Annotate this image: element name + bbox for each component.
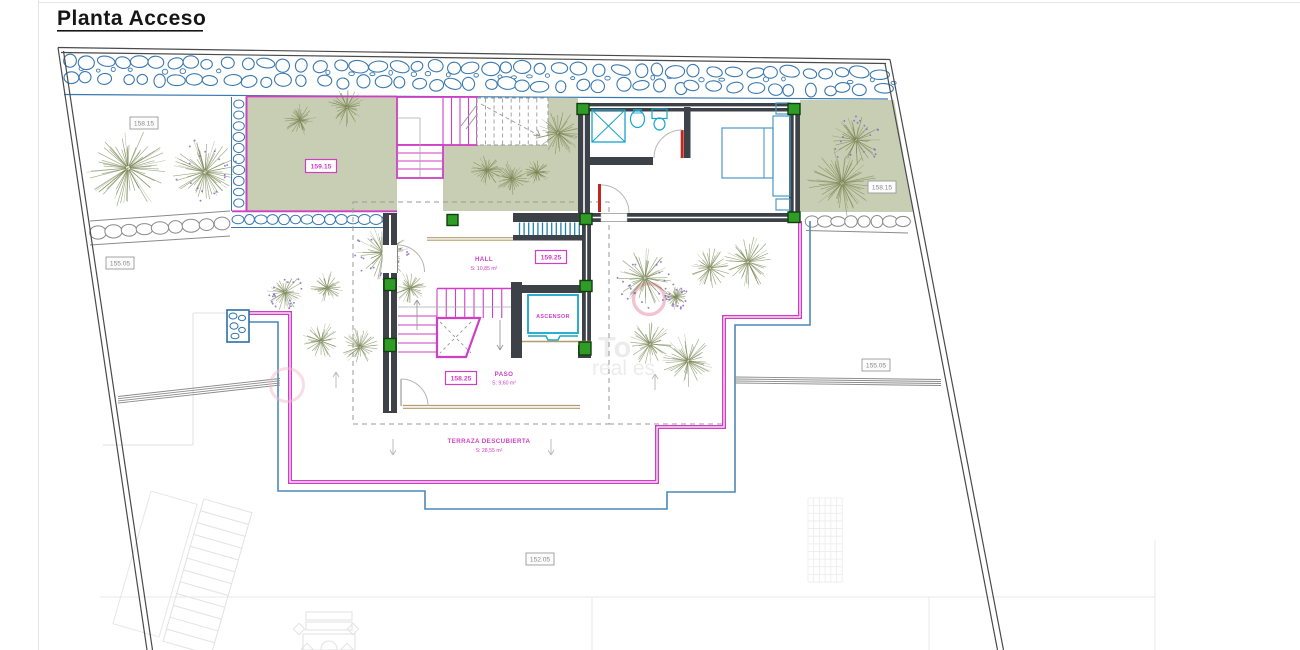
elevation-label: 152.05 — [526, 553, 554, 565]
room-label-ascensor: ASCENSOR — [536, 314, 570, 320]
tree-blossom-dot — [272, 303, 274, 305]
tree-blossom-dot — [406, 251, 408, 253]
tree-branch — [196, 143, 205, 172]
stone — [182, 219, 200, 232]
column-marker — [384, 339, 396, 352]
stone — [748, 82, 765, 94]
stone — [783, 84, 794, 96]
stone — [97, 55, 116, 68]
tree-blossom-dot — [685, 300, 687, 302]
stone — [255, 215, 268, 224]
tree-blossom-dot — [873, 156, 875, 158]
tree-blossom-dot — [863, 125, 865, 127]
tree-blossom-dot — [627, 298, 629, 300]
tree-blossom-dot — [877, 129, 879, 131]
tree-blossom-dot — [662, 299, 664, 301]
tree-branch — [286, 279, 298, 292]
elevator-sill — [528, 336, 578, 340]
tree-blossom-dot — [189, 163, 191, 165]
tree-blossom-dot — [658, 293, 660, 295]
stone — [234, 100, 244, 108]
gray-rocks-edge — [806, 231, 908, 234]
tree-blossom-dot — [361, 256, 363, 258]
tree-blossom-dot — [371, 239, 373, 241]
faint-stair-rung — [167, 629, 215, 643]
tree-blossom-dot — [681, 291, 683, 293]
pebble — [527, 75, 533, 78]
tree-blossom-dot — [853, 120, 855, 122]
tree-blossom-dot — [850, 154, 852, 156]
tree-blossom-dot — [224, 165, 226, 167]
tree-branch — [689, 343, 705, 360]
tree-branch — [116, 147, 127, 166]
faint-furniture — [347, 623, 358, 634]
pebble — [782, 77, 786, 81]
door-opening — [383, 245, 398, 273]
tree-branch — [206, 146, 223, 170]
garden-left — [246, 96, 397, 211]
stone — [590, 79, 606, 94]
stone — [121, 224, 136, 236]
bed-headboard — [773, 116, 790, 196]
stone — [530, 81, 549, 93]
tree-blossom-dot — [289, 300, 291, 302]
tree-blossom-dot — [843, 120, 845, 122]
stone — [275, 58, 291, 74]
tree-blossom-dot — [857, 122, 859, 124]
tree-blossom-dot — [213, 192, 215, 194]
tree-blossom-dot — [664, 295, 666, 297]
stone — [370, 215, 383, 225]
tree-blossom-dot — [218, 158, 220, 160]
faint-stair-rung — [170, 617, 218, 631]
tree-blossom-dot — [680, 288, 682, 290]
tree-blossom-dot — [275, 305, 277, 307]
stone — [239, 327, 246, 332]
stone — [447, 62, 461, 75]
stone — [533, 62, 547, 75]
room-label-paso: PASO S: 9,60 m² — [492, 371, 516, 387]
wall — [522, 285, 582, 293]
tree-blossom-dot — [840, 140, 842, 142]
stone — [482, 62, 500, 75]
tree-branch — [649, 323, 650, 343]
stone — [665, 65, 686, 79]
stone — [274, 72, 292, 87]
stone — [229, 313, 237, 319]
stone — [410, 60, 424, 73]
tree-blossom-dot — [399, 248, 401, 250]
toilet-bowl — [654, 118, 665, 130]
retaining-band-line — [118, 383, 280, 401]
stone — [245, 215, 255, 225]
tree-blossom-dot — [224, 176, 226, 178]
site-boundary-line — [58, 48, 147, 650]
pebble — [370, 73, 375, 76]
stone — [317, 74, 332, 86]
tree-blossom-dot — [297, 278, 299, 280]
column-marker — [579, 342, 591, 355]
stone — [575, 78, 591, 93]
tree — [354, 227, 409, 281]
faint-stair-rung — [187, 558, 235, 572]
faint-stair-rung — [194, 534, 242, 548]
stone — [706, 65, 723, 78]
pebble — [389, 70, 393, 75]
stone — [368, 60, 388, 73]
stone — [375, 75, 392, 88]
tree-blossom-dot — [268, 294, 270, 296]
tree-blossom-dot — [837, 156, 839, 158]
tree — [725, 237, 771, 288]
tree-blossom-dot — [284, 279, 286, 281]
faint-furniture — [293, 623, 304, 634]
title-underline — [57, 30, 203, 32]
stone — [199, 219, 214, 231]
tree-blossom-dot — [672, 305, 674, 307]
tree — [173, 140, 237, 202]
stone — [427, 58, 444, 73]
stone — [616, 76, 633, 93]
stone — [412, 78, 427, 90]
tree-branch — [650, 329, 667, 344]
tree-branch — [130, 147, 161, 166]
stone — [460, 60, 480, 75]
tree-blossom-dot — [380, 274, 382, 276]
elevation-label: 158.25 — [446, 372, 477, 385]
elevation-value: 158.15 — [134, 121, 155, 128]
faint-furniture — [341, 643, 352, 650]
stone — [686, 64, 699, 77]
tree-blossom-dot — [842, 136, 844, 138]
stone — [591, 63, 606, 78]
tree-blossom-dot — [667, 296, 669, 298]
retaining-band-line — [118, 381, 280, 399]
room-label-terraza: TERRAZA DESCUBIERTA S: 28,55 m² — [448, 438, 531, 454]
stone — [167, 74, 186, 86]
column-marker — [384, 279, 396, 291]
stone — [632, 79, 650, 91]
tree-blossom-dot — [672, 283, 674, 285]
stone — [896, 216, 911, 226]
stone — [336, 77, 349, 90]
stone — [555, 80, 566, 93]
elevation-value: 152.05 — [530, 557, 551, 564]
stone — [802, 68, 817, 80]
faint-stair-rung — [173, 605, 221, 619]
elevation-label: 159.15 — [306, 160, 337, 173]
elevation-value: 158.25 — [451, 376, 472, 383]
stone — [334, 59, 349, 72]
tree — [267, 278, 302, 309]
stone — [301, 215, 313, 224]
stone — [805, 83, 816, 97]
stone — [845, 216, 857, 228]
stone — [805, 216, 818, 227]
stone — [233, 176, 244, 185]
stone — [64, 72, 79, 84]
tree-blossom-dot — [863, 151, 865, 153]
tree-blossom-dot — [855, 116, 857, 118]
stone — [260, 76, 273, 88]
stone — [105, 225, 122, 238]
room-label-hall: HALL S: 10,85 m² — [471, 256, 498, 272]
stone — [183, 56, 199, 69]
tree-blossom-dot — [666, 298, 668, 300]
elevation-value: 155.05 — [110, 261, 131, 268]
pebble — [474, 73, 479, 77]
stone — [725, 66, 743, 77]
stair-landing — [437, 318, 480, 357]
column-marker — [580, 281, 592, 292]
column-marker — [580, 214, 592, 225]
tree-blossom-dot — [190, 182, 192, 184]
column-marker — [788, 104, 800, 115]
tree-blossom-dot — [272, 295, 274, 297]
stone — [653, 78, 666, 92]
tree-blossom-dot — [233, 182, 235, 184]
stone — [233, 154, 244, 163]
stone — [499, 61, 513, 75]
stone — [233, 132, 245, 141]
elevation-value: 155.05 — [866, 363, 887, 370]
stone — [358, 215, 370, 225]
stone — [515, 80, 529, 91]
page-title: Planta Acceso — [57, 7, 206, 30]
tree-branch — [749, 253, 768, 261]
tree-blossom-dot — [300, 288, 302, 290]
elevation-label: 158.15 — [130, 117, 158, 129]
elevation-label: 159.25 — [536, 251, 567, 264]
stone — [201, 59, 213, 69]
tree-blossom-dot — [668, 273, 670, 275]
tree-blossom-dot — [290, 305, 292, 307]
tree-blossom-dot — [641, 301, 643, 303]
tree — [662, 283, 687, 309]
tree-blossom-dot — [630, 288, 632, 290]
tree-blossom-dot — [292, 281, 294, 283]
tree-blossom-dot — [676, 289, 678, 291]
tree-blossom-dot — [287, 281, 289, 283]
tree-branch — [109, 149, 126, 166]
tree-blossom-dot — [672, 303, 674, 305]
floorplan-page: To real es 158.15 155.05 159.15 159.25 1… — [0, 0, 1300, 650]
tree-blossom-dot — [354, 255, 356, 257]
tree-branch — [117, 170, 128, 206]
stone — [90, 226, 107, 239]
tree-blossom-dot — [380, 272, 382, 274]
stone — [325, 214, 336, 224]
room-name: ASCENSOR — [536, 314, 570, 320]
stone — [336, 215, 348, 225]
elevation-label: 155.05 — [106, 257, 134, 269]
wall-partition — [590, 157, 653, 165]
stone — [726, 81, 744, 95]
nightstand — [776, 199, 790, 210]
tree-branch — [130, 153, 163, 167]
tree-blossom-dot — [648, 307, 650, 309]
stone — [153, 74, 165, 88]
stone — [779, 64, 801, 79]
tree-blossom-dot — [634, 264, 636, 266]
tree-blossom-dot — [632, 264, 634, 266]
stone — [114, 55, 131, 69]
stone — [231, 333, 239, 339]
tree-blossom-dot — [194, 140, 196, 142]
tree-blossom-dot — [189, 146, 191, 148]
room-name: PASO — [495, 371, 514, 378]
elevation-label: 158.15 — [868, 181, 896, 193]
stone — [202, 75, 218, 87]
stone — [817, 216, 832, 227]
site-boundary-line — [885, 64, 998, 650]
tree-blossom-dot — [271, 301, 273, 303]
door-threshold — [601, 214, 627, 222]
pebble — [326, 70, 330, 74]
stone — [230, 323, 238, 329]
stone — [485, 78, 499, 90]
wall — [513, 213, 591, 222]
pebble — [545, 74, 549, 78]
pebble — [891, 81, 896, 84]
tree-blossom-dot — [683, 290, 685, 292]
stone — [883, 216, 898, 227]
stone — [610, 63, 631, 78]
pebble — [162, 69, 168, 74]
tree-blossom-dot — [273, 286, 275, 288]
stone — [233, 143, 244, 152]
faint-stair-rung — [190, 546, 238, 560]
stone — [767, 83, 783, 97]
faint-stair-rung — [200, 511, 248, 525]
pebble — [96, 69, 100, 72]
stone — [214, 217, 230, 230]
stone — [221, 56, 235, 69]
door-swing-arc — [654, 130, 682, 158]
tree-blossom-dot — [677, 305, 679, 307]
stone — [136, 224, 153, 235]
stone — [224, 74, 242, 86]
stone — [835, 67, 849, 77]
stone — [233, 122, 244, 130]
tree-blossom-dot — [370, 267, 372, 269]
tree — [303, 323, 336, 357]
stone — [294, 58, 309, 74]
tree-branch — [129, 170, 147, 202]
room-name: TERRAZA DESCUBIERTA — [448, 438, 531, 445]
pebble — [719, 78, 725, 81]
tree-blossom-dot — [660, 261, 662, 263]
pebble — [511, 76, 516, 79]
stone — [294, 74, 307, 88]
tree-blossom-dot — [875, 153, 877, 155]
stone — [746, 66, 765, 79]
tree-blossom-dot — [300, 282, 302, 284]
tree-blossom-dot — [274, 295, 276, 297]
stone — [858, 216, 870, 227]
column-marker — [447, 215, 458, 226]
tree-blossom-dot — [665, 288, 667, 290]
pebble — [180, 69, 185, 74]
stone — [123, 74, 135, 85]
faint-stair-rung — [197, 523, 245, 537]
stone — [635, 63, 648, 78]
tree — [394, 273, 426, 303]
tree-blossom-dot — [668, 299, 670, 301]
room-area: S: 9,60 m² — [492, 381, 516, 387]
stone — [706, 80, 722, 91]
stone — [148, 56, 164, 69]
stone — [234, 199, 244, 207]
pebble — [111, 67, 115, 71]
stone — [312, 214, 324, 224]
pebble — [425, 71, 430, 75]
pebble — [411, 72, 416, 76]
pebble — [349, 72, 355, 76]
tree-blossom-dot — [629, 284, 631, 286]
tree-branch — [630, 278, 645, 299]
column-marker — [788, 212, 800, 223]
watermark-ring — [271, 369, 304, 402]
tree-blossom-dot — [834, 148, 836, 150]
stone — [130, 56, 148, 68]
stone — [570, 61, 588, 75]
tree-blossom-dot — [216, 191, 218, 193]
tree — [87, 132, 165, 206]
watermark-line2: real es — [592, 357, 655, 380]
tree-blossom-dot — [273, 294, 275, 296]
stone — [186, 73, 203, 85]
tree-blossom-dot — [656, 264, 658, 266]
tree-blossom-dot — [859, 120, 861, 122]
stone — [443, 76, 463, 91]
faint-stair-rung — [184, 570, 232, 584]
elevation-value: 159.15 — [311, 164, 332, 171]
tree-blossom-dot — [680, 306, 682, 308]
tree-blossom-dot — [373, 267, 375, 269]
stone — [551, 62, 568, 74]
stone — [239, 315, 246, 320]
tree — [343, 328, 377, 362]
faint-stair-outline — [113, 491, 197, 637]
pebble — [571, 77, 575, 80]
tree-blossom-dot — [685, 291, 687, 293]
tree-branch — [730, 263, 747, 270]
pebble — [217, 69, 221, 73]
tree-blossom-dot — [363, 257, 365, 259]
tree-branch — [286, 283, 301, 291]
faint-stair-rung — [177, 594, 225, 608]
tree-blossom-dot — [293, 302, 295, 304]
stone — [513, 60, 531, 74]
tree-blossom-dot — [361, 270, 363, 272]
stone — [240, 74, 258, 89]
floorplan-svg: To real es 158.15 155.05 159.15 159.25 1… — [0, 0, 1300, 650]
faint-furniture — [321, 641, 337, 650]
pebble — [847, 80, 853, 83]
tree-blossom-dot — [214, 150, 216, 152]
tree-blossom-dot — [226, 164, 228, 166]
stone — [763, 66, 778, 79]
stone — [234, 111, 244, 119]
tree-branch — [128, 145, 129, 166]
elevation-label: 155.05 — [862, 359, 890, 371]
tree-blossom-dot — [408, 253, 410, 255]
elevation-value: 158.15 — [872, 185, 893, 192]
tree-blossom-dot — [197, 187, 199, 189]
door-swing-arc — [398, 245, 425, 272]
stone — [848, 64, 870, 79]
